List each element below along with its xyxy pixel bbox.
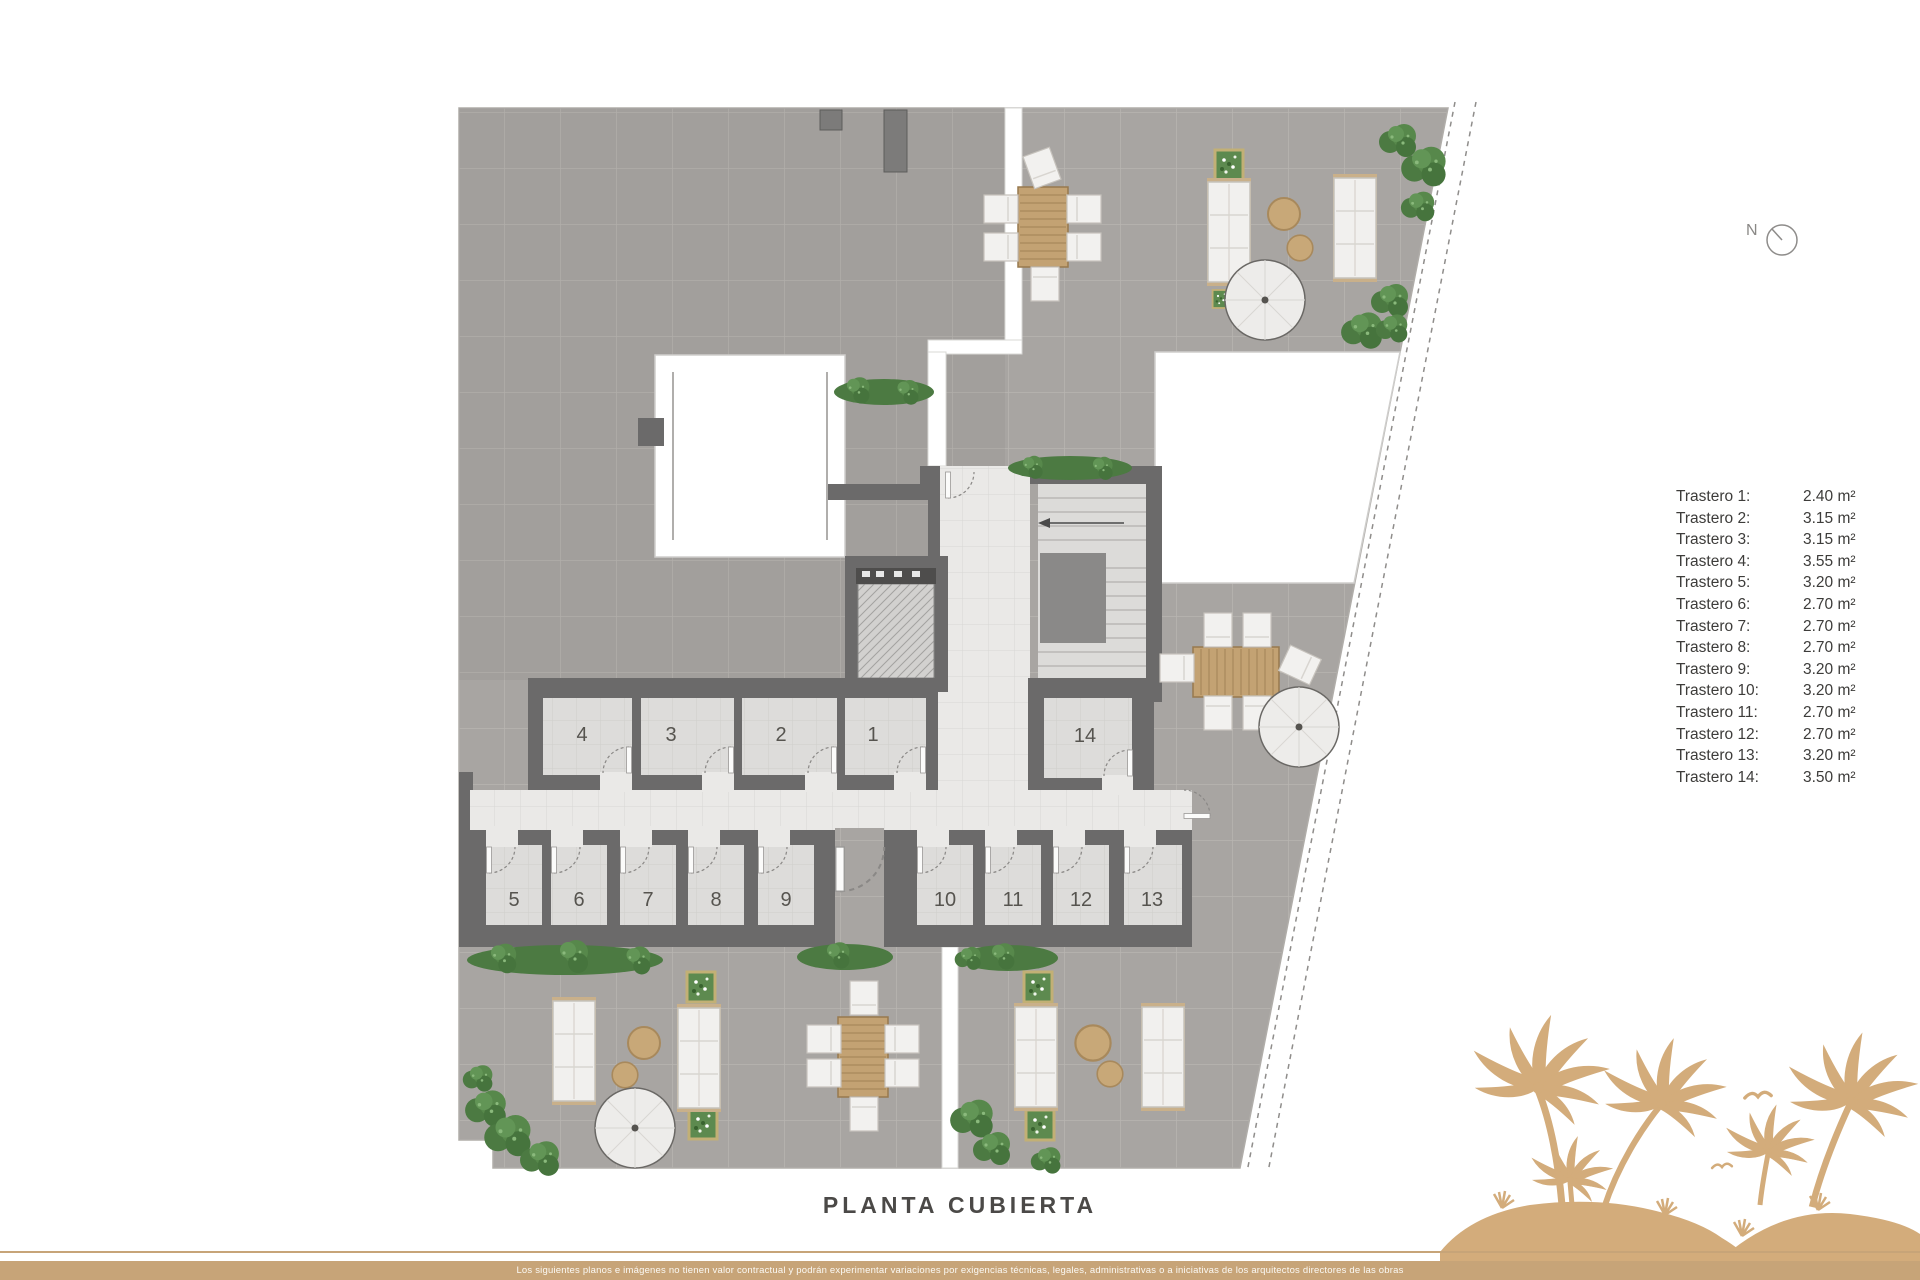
legend-row: Trastero 11:2.70 m² <box>1676 702 1876 724</box>
chair <box>1067 233 1101 261</box>
chair <box>1243 613 1271 647</box>
legend-label: Trastero 14: <box>1676 767 1803 789</box>
legend-row: Trastero 5:3.20 m² <box>1676 572 1876 594</box>
dining-table <box>1193 647 1279 697</box>
storage-room-floor <box>486 845 542 925</box>
chair <box>1031 267 1059 301</box>
legend-row: Trastero 6:2.70 m² <box>1676 594 1876 616</box>
storage-room-number: 6 <box>573 889 584 911</box>
legend-row: Trastero 9:3.20 m² <box>1676 659 1876 681</box>
divider-strip <box>928 352 946 466</box>
legend-label: Trastero 6: <box>1676 594 1803 616</box>
skylight-void <box>638 355 845 557</box>
legend-row: Trastero 4:3.55 m² <box>1676 551 1876 573</box>
entrance-hall-floor <box>938 688 1028 794</box>
planter <box>1026 1110 1054 1140</box>
legend-value: 2.70 m² <box>1803 594 1856 616</box>
core-wall <box>828 484 940 500</box>
palm-head <box>1473 1015 1608 1132</box>
legend-value: 3.20 m² <box>1803 572 1856 594</box>
legend-row: Trastero 8:2.70 m² <box>1676 637 1876 659</box>
wall-pier <box>638 418 664 446</box>
storage-room-number: 13 <box>1141 889 1163 911</box>
storage-room-number: 8 <box>710 889 721 911</box>
storage-room-number: 3 <box>665 724 676 746</box>
legend: Trastero 1:2.40 m² Trastero 2:3.15 m² Tr… <box>1676 486 1876 788</box>
legend-row: Trastero 2:3.15 m² <box>1676 508 1876 530</box>
divider-strip <box>942 947 958 1168</box>
compass: N <box>1746 220 1800 258</box>
storage-room-number: 10 <box>934 889 956 911</box>
planter <box>689 1109 717 1139</box>
sofa <box>552 997 596 1105</box>
legend-value: 3.15 m² <box>1803 529 1856 551</box>
stair-landing <box>1040 553 1106 643</box>
storage-room-floor <box>845 698 926 775</box>
chimney <box>884 110 907 172</box>
palm-artwork <box>1440 1015 1920 1262</box>
palm-head <box>1604 1039 1725 1144</box>
chair <box>984 195 1018 223</box>
legend-value: 2.70 m² <box>1803 616 1856 638</box>
legend-label: Trastero 8: <box>1676 637 1803 659</box>
legend-value: 2.70 m² <box>1803 637 1856 659</box>
chimney <box>820 110 842 130</box>
page-title: PLANTA CUBIERTA <box>0 1192 1920 1219</box>
stairwell <box>1038 484 1146 686</box>
footer-bar: Los siguientes planos e imágenes no tien… <box>0 1261 1920 1280</box>
storage-room-floor <box>917 845 973 925</box>
chair <box>1160 654 1194 682</box>
right-void <box>1155 352 1400 583</box>
legend-value: 3.20 m² <box>1803 745 1856 767</box>
storage-room-number: 4 <box>576 724 587 746</box>
bird-icon <box>1745 1092 1771 1098</box>
compass-dial <box>1762 220 1800 258</box>
legend-row: Trastero 10:3.20 m² <box>1676 680 1876 702</box>
legend-value: 3.50 m² <box>1803 767 1856 789</box>
planter <box>1215 150 1243 180</box>
chair <box>885 1025 919 1053</box>
legend-value: 3.55 m² <box>1803 551 1856 573</box>
floor-plan-svg: 4 3 2 1 14 5 6 7 8 9 10 11 12 13 <box>0 0 1920 1280</box>
side-table <box>1075 1025 1110 1060</box>
bird-icon <box>1712 1164 1732 1168</box>
chair <box>984 233 1018 261</box>
dining-table <box>1018 187 1068 267</box>
legend-label: Trastero 1: <box>1676 486 1803 508</box>
parasol <box>1259 687 1339 767</box>
legend-value: 2.40 m² <box>1803 486 1856 508</box>
legend-value: 2.70 m² <box>1803 724 1856 746</box>
sofa <box>1014 1003 1058 1111</box>
grass-tuft <box>1734 1219 1754 1236</box>
palm-head <box>1789 1033 1917 1144</box>
chair <box>807 1059 841 1087</box>
legend-label: Trastero 7: <box>1676 616 1803 638</box>
storage-room-floor <box>688 845 744 925</box>
storage-room-number: 7 <box>642 889 653 911</box>
storage-room-number: 1 <box>867 724 878 746</box>
legend-label: Trastero 4: <box>1676 551 1803 573</box>
storage-room-floor <box>1124 845 1182 925</box>
storage-room-number: 14 <box>1074 725 1096 747</box>
side-table <box>1097 1061 1123 1087</box>
chair <box>850 1097 878 1131</box>
storage-room-floor <box>742 698 837 775</box>
storage-room-number: 2 <box>775 724 786 746</box>
legend-row: Trastero 3:3.15 m² <box>1676 529 1876 551</box>
storage-room-floor <box>1053 845 1109 925</box>
planter <box>687 972 715 1002</box>
legend-value: 3.20 m² <box>1803 680 1856 702</box>
storage-room-floor <box>758 845 814 925</box>
chair <box>1204 696 1232 730</box>
dining-table <box>838 1017 888 1097</box>
chair <box>850 981 878 1015</box>
legend-label: Trastero 10: <box>1676 680 1803 702</box>
storage-room-number: 11 <box>1003 889 1024 911</box>
storage-room-number: 9 <box>780 889 791 911</box>
legend-label: Trastero 13: <box>1676 745 1803 767</box>
parasol <box>1225 260 1305 340</box>
planter <box>1024 972 1052 1002</box>
legend-row: Trastero 7:2.70 m² <box>1676 616 1876 638</box>
legend-value: 2.70 m² <box>1803 702 1856 724</box>
storage-room-floor <box>641 698 734 775</box>
side-table <box>1268 198 1300 230</box>
legend-row: Trastero 13:3.20 m² <box>1676 745 1876 767</box>
north-label: N <box>1746 222 1758 240</box>
legend-label: Trastero 2: <box>1676 508 1803 530</box>
legend-label: Trastero 11: <box>1676 702 1803 724</box>
side-table <box>1287 235 1313 261</box>
footer-disclaimer: Los siguientes planos e imágenes no tien… <box>516 1265 1403 1276</box>
side-table <box>628 1027 660 1059</box>
legend-value: 3.15 m² <box>1803 508 1856 530</box>
legend-row: Trastero 12:2.70 m² <box>1676 724 1876 746</box>
legend-label: Trastero 3: <box>1676 529 1803 551</box>
storage-block: 4 3 2 1 14 5 6 7 8 9 10 11 12 13 <box>459 678 1210 947</box>
palm-head <box>1726 1105 1814 1181</box>
chair <box>1204 613 1232 647</box>
legend-label: Trastero 12: <box>1676 724 1803 746</box>
parasol <box>595 1088 675 1168</box>
legend-value: 3.20 m² <box>1803 659 1856 681</box>
storage-room-floor <box>551 845 607 925</box>
chair <box>807 1025 841 1053</box>
storage-room-floor <box>620 845 676 925</box>
sofa <box>1333 174 1377 282</box>
footer-accent-line <box>0 1251 1920 1253</box>
legend-label: Trastero 5: <box>1676 572 1803 594</box>
entrance-hall-floor <box>940 466 1030 688</box>
legend-label: Trastero 9: <box>1676 659 1803 681</box>
elevator <box>845 556 948 692</box>
chair <box>1067 195 1101 223</box>
corridor-floor <box>470 790 1192 830</box>
legend-row: Trastero 14:3.50 m² <box>1676 767 1876 789</box>
storage-room-number: 12 <box>1070 889 1092 911</box>
storage-room-number: 5 <box>508 889 519 911</box>
legend-row: Trastero 1:2.40 m² <box>1676 486 1876 508</box>
island-mound <box>1718 1213 1920 1262</box>
storage-room-floor <box>985 845 1041 925</box>
chair <box>885 1059 919 1087</box>
side-table <box>612 1062 638 1088</box>
sofa <box>1141 1003 1185 1111</box>
elevator-car <box>858 584 934 678</box>
sofa <box>677 1004 721 1112</box>
